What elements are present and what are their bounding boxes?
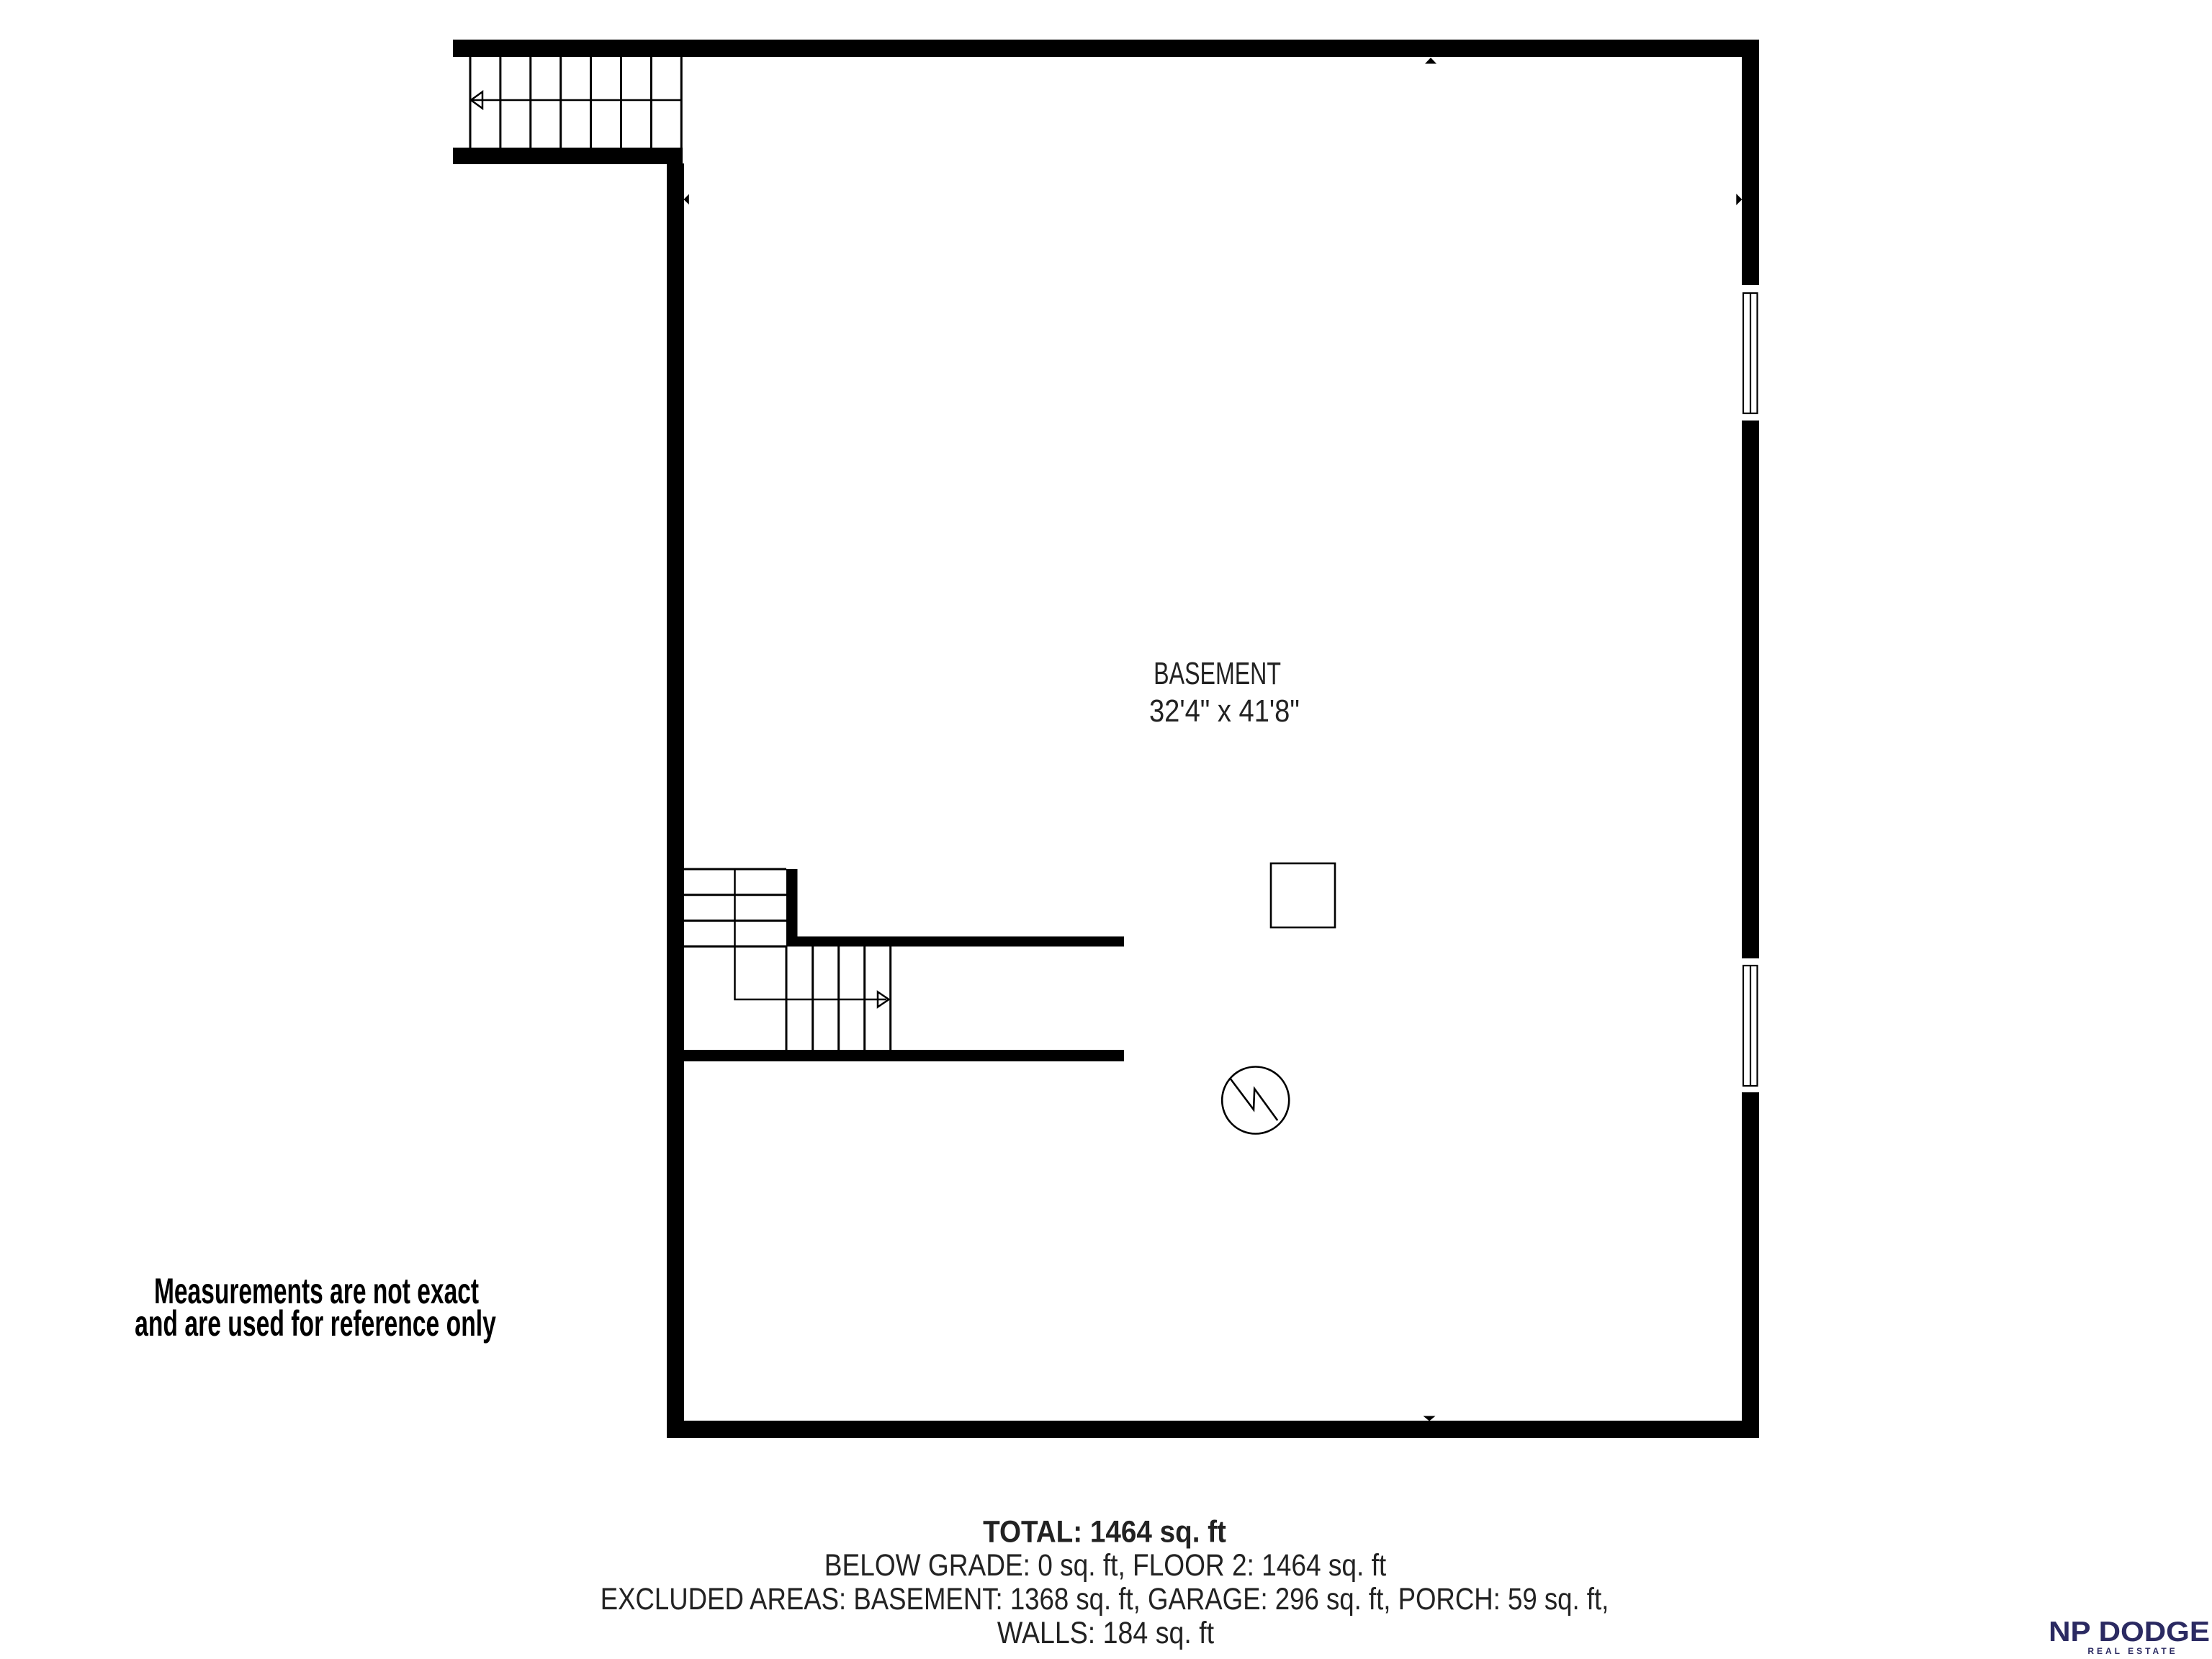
svg-text:WALLS: 184 sq. ft: WALLS: 184 sq. ft <box>997 1615 1214 1650</box>
svg-text:TOTAL: 1464 sq. ft: TOTAL: 1464 sq. ft <box>983 1514 1226 1549</box>
svg-text:REAL ESTATE: REAL ESTATE <box>2087 1646 2177 1656</box>
svg-text:NP DODGE: NP DODGE <box>2049 1615 2210 1647</box>
svg-text:BELOW GRADE: 0 sq. ft, FLOOR 2: BELOW GRADE: 0 sq. ft, FLOOR 2: 1464 sq.… <box>824 1547 1386 1582</box>
svg-text:EXCLUDED AREAS: BASEMENT: 1368: EXCLUDED AREAS: BASEMENT: 1368 sq. ft, G… <box>601 1582 1609 1616</box>
svg-text:32'4" x 41'8": 32'4" x 41'8" <box>1149 693 1300 728</box>
svg-text:and are used for reference onl: and are used for reference only <box>135 1303 496 1344</box>
svg-text:BASEMENT: BASEMENT <box>1154 656 1281 691</box>
